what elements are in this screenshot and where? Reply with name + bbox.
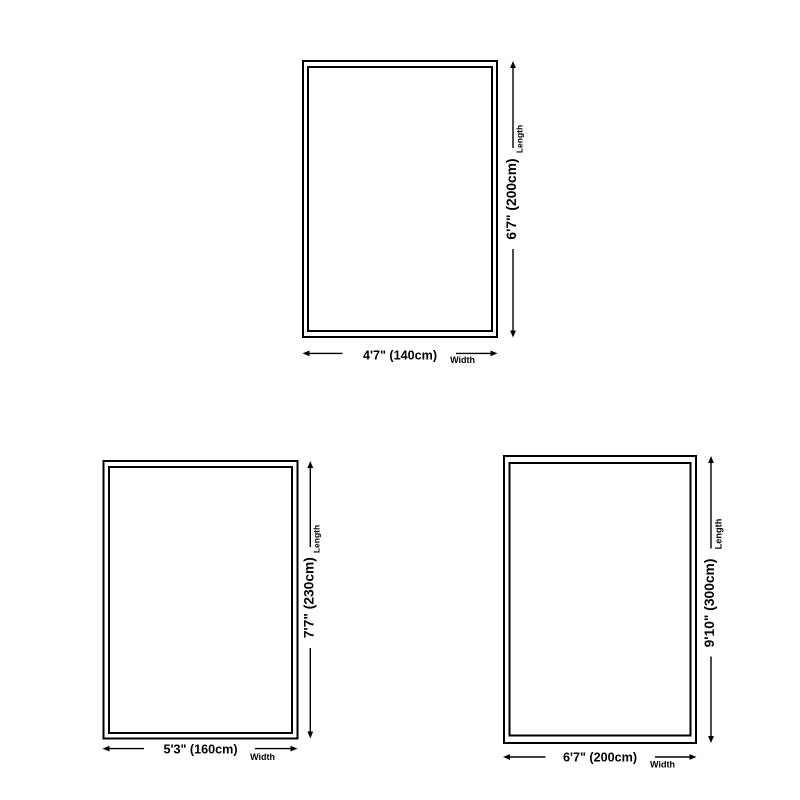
- svg-text:9'10" (300cm): 9'10" (300cm): [702, 559, 717, 648]
- svg-text:Length: Length: [515, 125, 525, 153]
- svg-text:Width: Width: [250, 752, 275, 762]
- svg-text:Width: Width: [650, 760, 675, 770]
- svg-text:6'7" (200cm): 6'7" (200cm): [563, 750, 637, 764]
- svg-text:Width: Width: [450, 355, 475, 365]
- svg-text:7'7" (230cm): 7'7" (230cm): [302, 557, 317, 638]
- svg-text:5'3" (160cm): 5'3" (160cm): [163, 742, 237, 756]
- svg-text:Length: Length: [714, 518, 724, 549]
- svg-text:6'7" (200cm): 6'7" (200cm): [504, 158, 519, 239]
- svg-text:Length: Length: [311, 525, 321, 553]
- svg-text:4'7" (140cm): 4'7" (140cm): [363, 348, 437, 362]
